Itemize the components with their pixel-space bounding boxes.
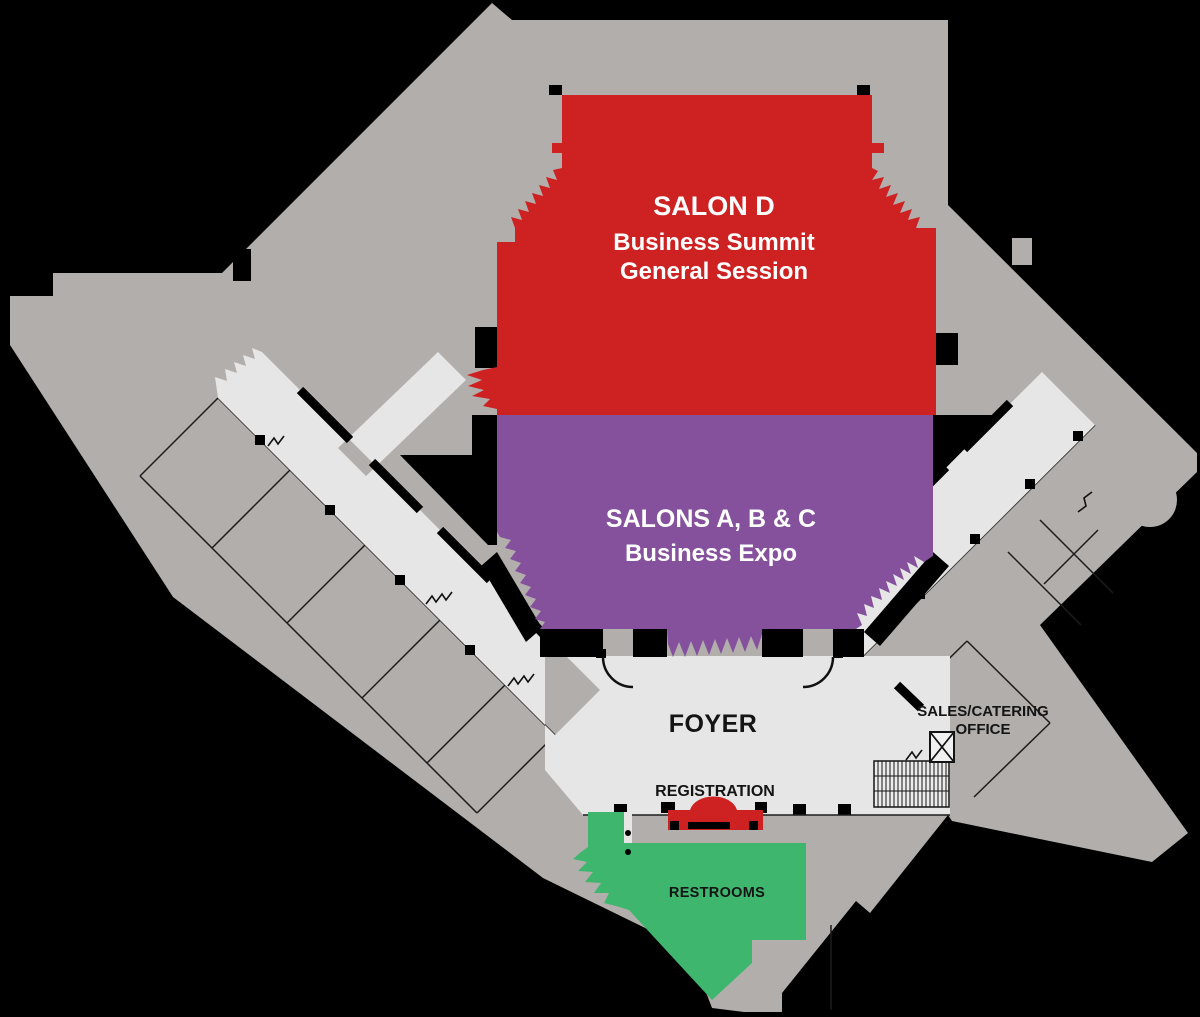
stairs — [874, 761, 949, 807]
sales-office-label-line1: SALES/CATERING — [917, 703, 1048, 720]
sales-office-label-line2: OFFICE — [956, 721, 1011, 738]
salon-d-event-line2: General Session — [620, 258, 808, 285]
wing-notch — [1012, 238, 1032, 265]
restrooms-door-gap — [624, 812, 632, 843]
restrooms-door-dot — [625, 849, 631, 855]
salon-d-label: SALON D — [653, 191, 775, 221]
salon-d-event-line1: Business Summit — [613, 229, 814, 256]
stair-tower-bump — [1123, 473, 1177, 527]
elevator — [930, 732, 954, 762]
foyer-label: FOYER — [669, 710, 758, 738]
restrooms-door-dot — [625, 830, 631, 836]
floor-plan-canvas: SALON D Business Summit General Session … — [0, 0, 1200, 1017]
salons-abc-label: SALONS A, B & C — [606, 505, 816, 533]
salons-abc-event-line1: Business Expo — [625, 540, 797, 567]
registration-label: REGISTRATION — [655, 783, 775, 800]
floor-plan: SALON D Business Summit General Session … — [0, 0, 1200, 1017]
restrooms-label: RESTROOMS — [669, 885, 765, 901]
